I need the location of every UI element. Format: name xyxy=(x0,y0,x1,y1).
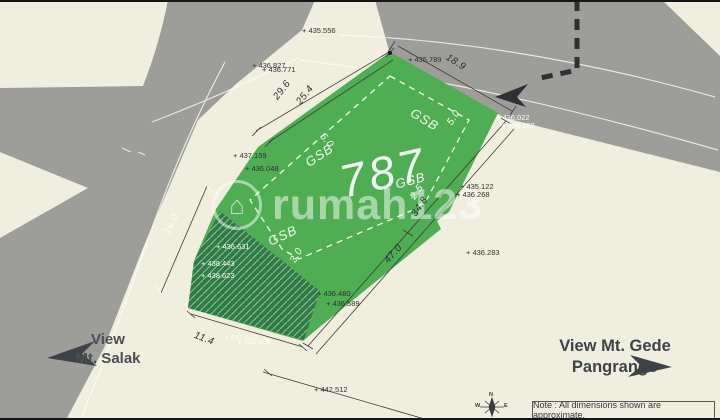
elevation-442-512: + 442.512 xyxy=(314,386,348,394)
elevation-436-480: + 436.480 xyxy=(317,290,351,298)
elevation-436-589: + 436.589 xyxy=(326,300,360,308)
elevation-435-556: + 435.556 xyxy=(302,27,336,35)
view-gede-label: View Mt. Gede Pangrango xyxy=(520,336,710,377)
view-gede-line1: View Mt. Gede xyxy=(520,336,710,357)
compass-letter-w: W xyxy=(475,404,480,410)
elevation-436-163: + 436.163 xyxy=(501,122,535,130)
watermark-house-icon: ⌂ xyxy=(212,180,262,230)
elevation-435-789: + 435.789 xyxy=(408,56,442,64)
view-salak-line2: Mt. Salak xyxy=(58,350,158,369)
note-box: Note : All dimensions shown are approxim… xyxy=(532,401,715,419)
compass-rose-icon xyxy=(480,398,504,416)
elevation-438-443: + 438.443 xyxy=(201,260,235,268)
site-plan-canvas: ⌂ rumah123 View Mt. Salak View Mt. Gede … xyxy=(0,0,720,420)
elevation-438-623: + 438.623 xyxy=(201,272,235,280)
view-gede-line2: Pangrango xyxy=(520,357,710,378)
elevation-436-631: + 436.631 xyxy=(216,243,250,251)
elevation-436-048: + 436.048 xyxy=(245,165,279,173)
survey-point-marker xyxy=(388,51,392,55)
elevation-436-771: + 436.771 xyxy=(262,66,296,74)
view-salak-line1: View xyxy=(58,331,158,350)
note-text: Note : All dimensions shown are approxim… xyxy=(533,400,714,420)
compass-letter-n: N xyxy=(489,393,493,399)
compass-letter-e: E xyxy=(504,404,508,410)
view-salak-label: View Mt. Salak xyxy=(58,331,158,369)
elevation-437-159: + 437.159 xyxy=(233,152,267,160)
elevation-436-268: + 436.268 xyxy=(456,191,490,199)
letterbox-bar-top xyxy=(0,0,720,2)
elevation-436-283: + 436.283 xyxy=(466,249,500,257)
elevation-433-600: + 433.600 xyxy=(237,338,271,346)
